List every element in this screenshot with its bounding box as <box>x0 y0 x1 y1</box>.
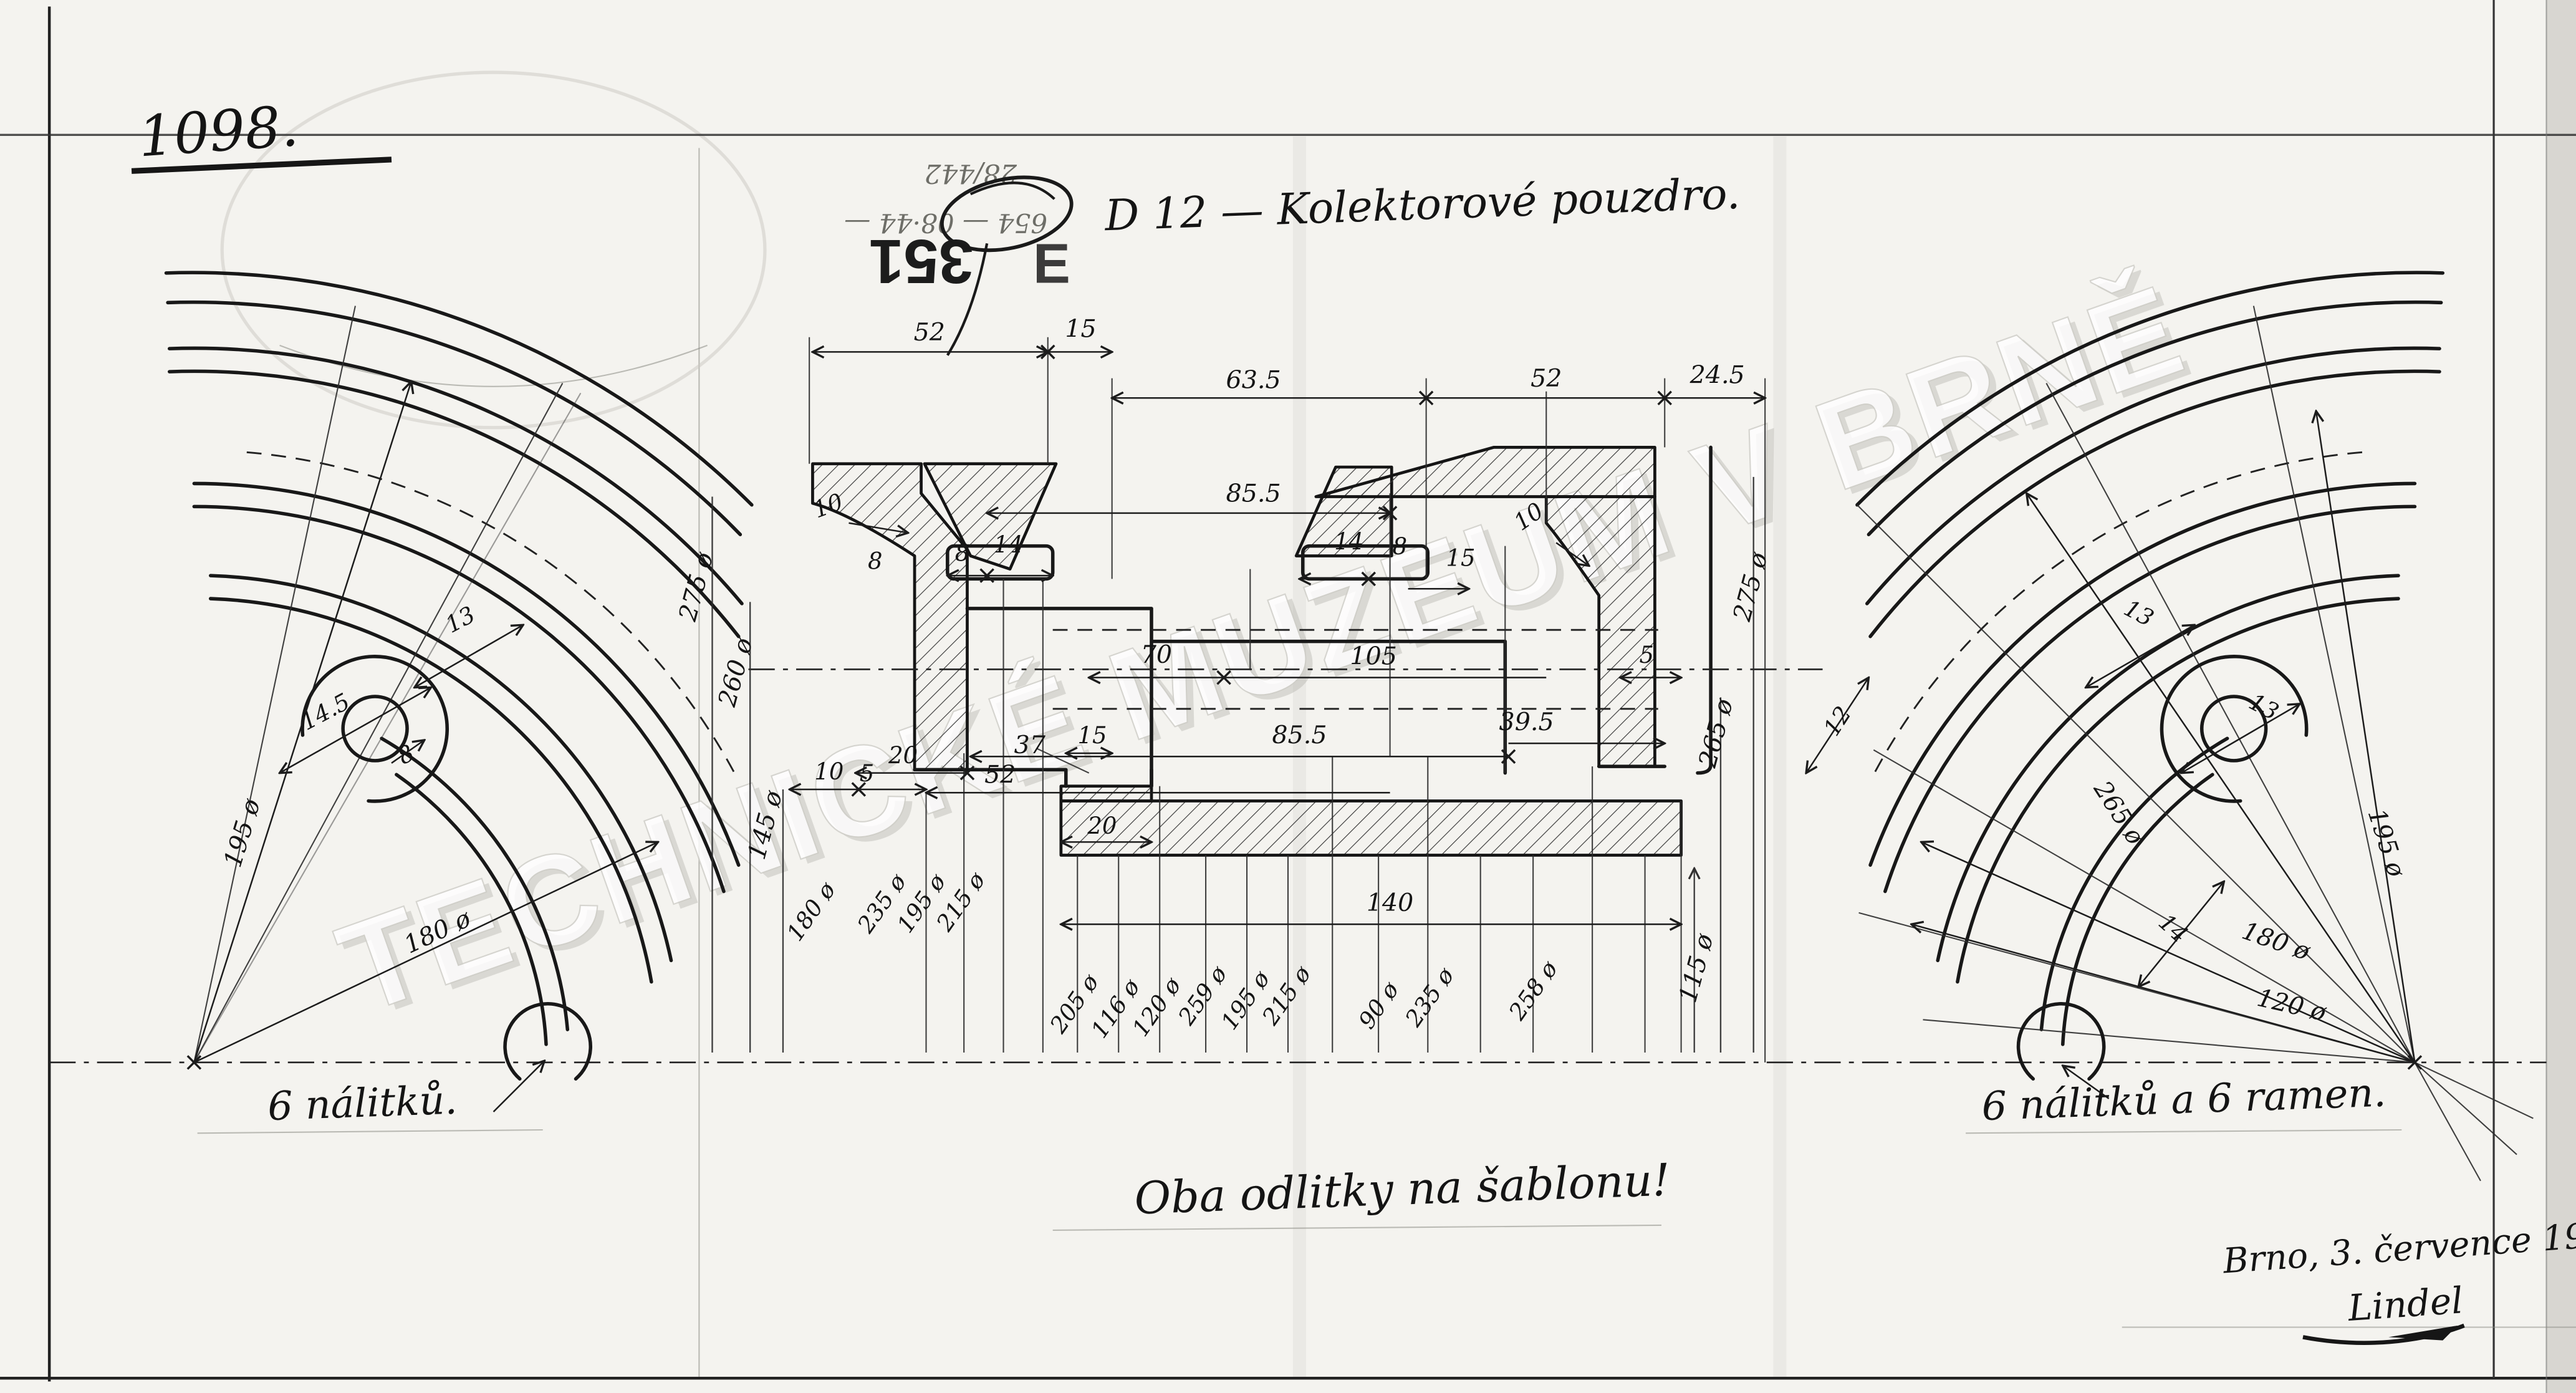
dim-63-5: 63.5 <box>1226 365 1281 394</box>
dim-8-right: 8 <box>1393 533 1408 560</box>
dim-14-left: 14 <box>994 531 1023 558</box>
stamp-number-text: 351 <box>869 226 973 296</box>
dim-20-left: 20 <box>888 742 918 769</box>
dim-10-bottom: 10 <box>814 758 843 785</box>
dim-5-right: 5 <box>1639 642 1654 668</box>
signature-text: Lindel <box>2346 1279 2464 1329</box>
left-wheel-note-text: 6 nálitků. <box>267 1077 458 1130</box>
drawing-sheet: TECHNICKÉ MUZEUM V BRNĚ TECHNICKÉ MUZEUM… <box>0 0 2576 1393</box>
dim-105: 105 <box>1350 642 1397 671</box>
dim-15-right: 15 <box>1446 544 1476 571</box>
stamp-letter-text: E <box>1033 233 1070 296</box>
dim-85-5-top: 85.5 <box>1226 479 1281 508</box>
dim-24-5: 24.5 <box>1689 361 1745 390</box>
dim-20-notch: 20 <box>1087 812 1117 839</box>
dim-15-bottom: 15 <box>1078 722 1107 749</box>
page-edge <box>2547 0 2576 1393</box>
dim-140: 140 <box>1367 889 1414 917</box>
dim-52-bottom: 52 <box>984 760 1016 789</box>
dim-70: 70 <box>1141 640 1172 669</box>
dim-52a: 52 <box>914 318 945 347</box>
dim-8-left: 8 <box>955 539 970 566</box>
dim-52b: 52 <box>1531 364 1562 393</box>
dim-85-5-bottom: 85.5 <box>1272 721 1327 750</box>
technical-drawing-canvas: TECHNICKÉ MUZEUM V BRNĚ TECHNICKÉ MUZEUM… <box>0 0 2576 1393</box>
dim-14-right: 14 <box>1334 528 1363 555</box>
fold-shadow <box>1773 137 1786 1378</box>
dim-8-left-outer: 8 <box>868 548 883 575</box>
dim-5-bottom: 5 <box>860 760 875 787</box>
dim-15: 15 <box>1065 315 1096 344</box>
dim-39-5: 39.5 <box>1499 708 1554 736</box>
drawing-number: 1098. <box>137 94 300 170</box>
dim-37: 37 <box>1014 731 1046 759</box>
